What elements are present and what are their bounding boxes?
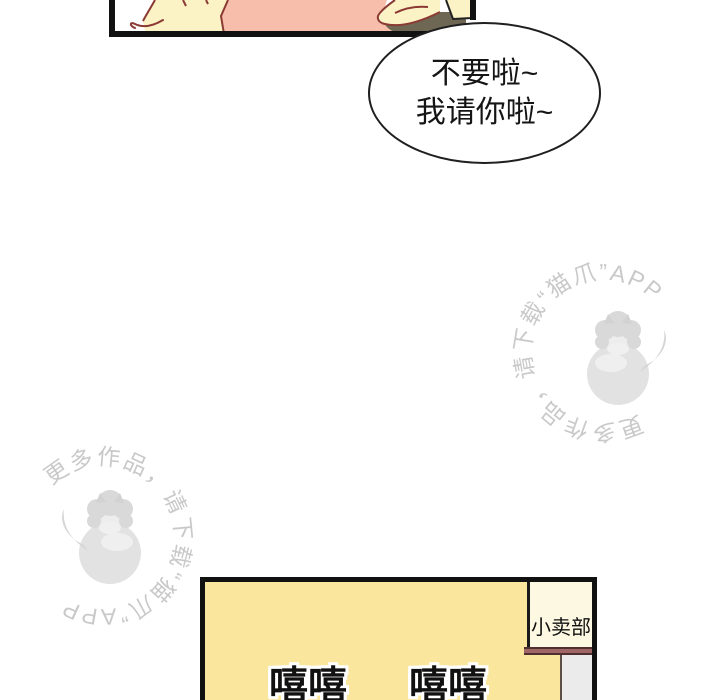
shop-sign-label: 小卖部 xyxy=(531,618,591,647)
catgirl-illustration xyxy=(587,311,666,405)
giggle-text-2: 嘻嘻 xyxy=(409,667,487,700)
awning-strip xyxy=(524,647,592,655)
giggle-text-1: 嘻嘻 xyxy=(269,667,347,700)
speech-line-2: 我请你啦~ xyxy=(416,93,554,132)
watermark-right: 更多作品，请下载“猫爪”APP xyxy=(501,250,707,456)
shop-panel: 小卖部 嘻嘻 嘻嘻 xyxy=(200,577,597,700)
panel-border-right xyxy=(470,0,476,20)
shirt-shape xyxy=(221,0,400,34)
speech-bubble: 不要啦~ 我请你啦~ xyxy=(368,22,601,164)
shop-sign: 小卖部 xyxy=(527,582,592,647)
wall-strip xyxy=(560,655,592,700)
catgirl-illustration xyxy=(62,490,141,584)
panel-border-bottom xyxy=(109,31,455,37)
comic-page: 不要啦~ 我请你啦~ 更多作品，请下载“猫爪 xyxy=(0,0,720,700)
watermark-left: 更多作品，请下载“猫爪”APP xyxy=(0,437,206,643)
speech-line-1: 不要啦~ xyxy=(431,54,539,93)
